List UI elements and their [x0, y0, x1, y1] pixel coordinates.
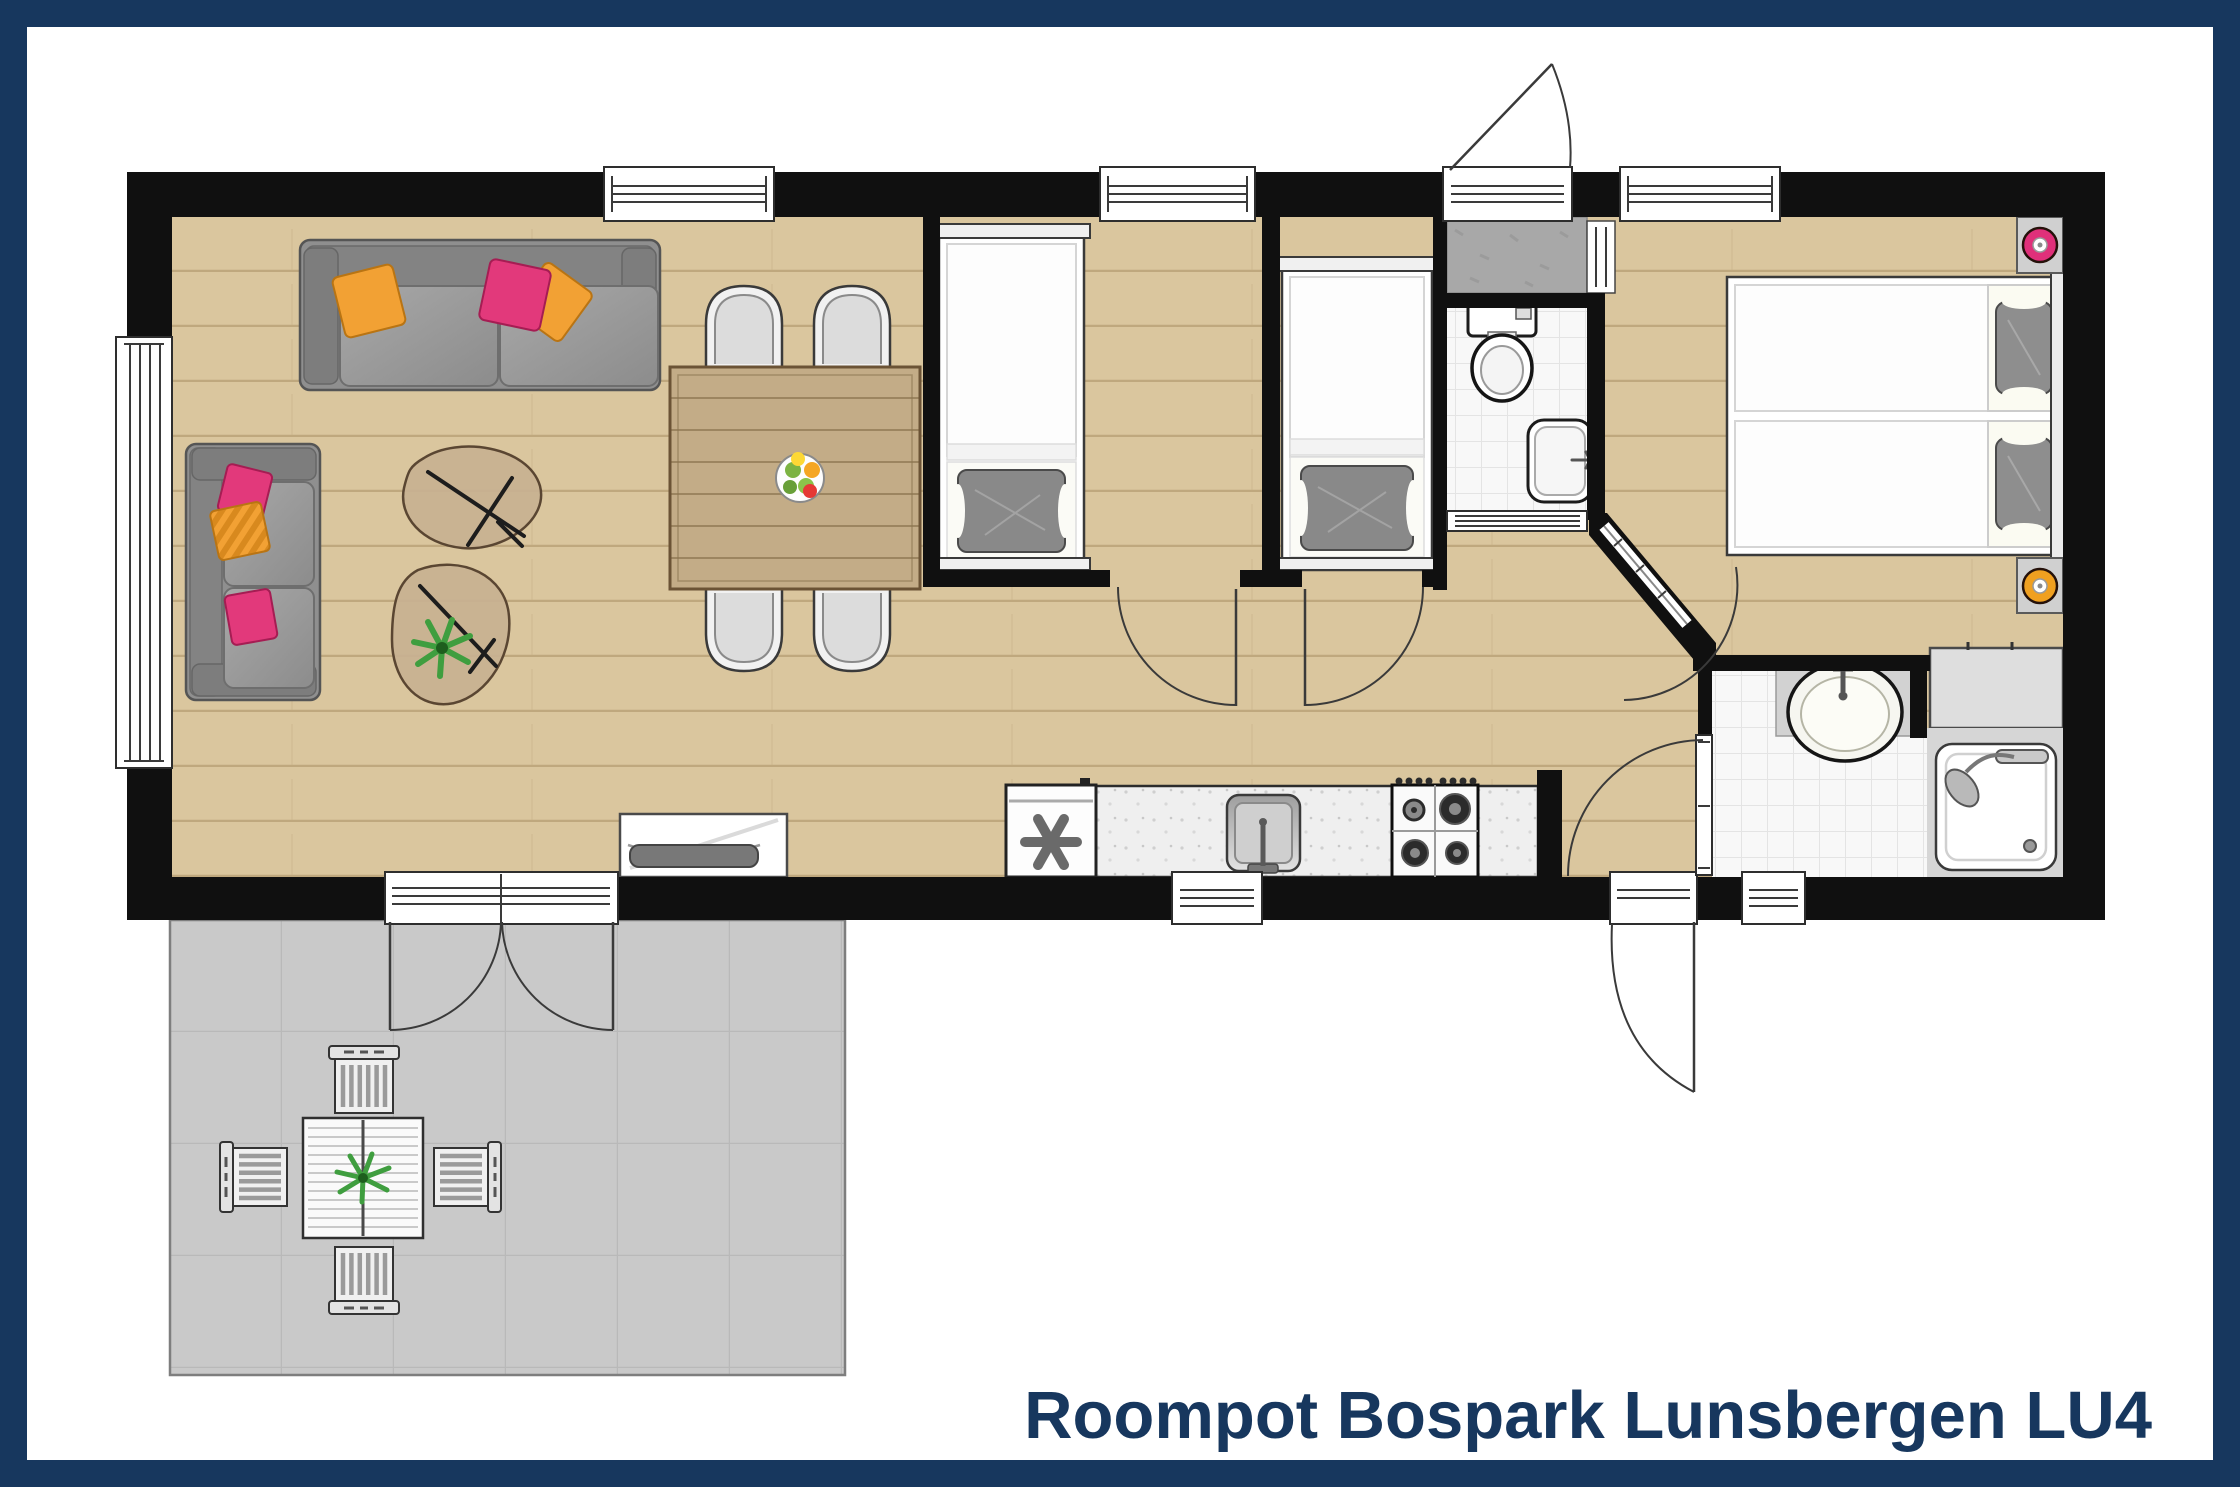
sofa-pillow-pink2	[224, 588, 278, 645]
bathroom	[1712, 642, 2063, 877]
sofa-pillow-pink	[478, 258, 552, 332]
coffee-table-1	[403, 447, 541, 549]
tv-cabinet	[620, 814, 787, 877]
toilet-sink	[1528, 420, 1594, 502]
entry-mat	[1447, 217, 1587, 293]
window-bathroom	[1742, 872, 1805, 924]
toilet	[1468, 300, 1536, 401]
kitchen-sink	[1227, 795, 1300, 873]
drain	[2024, 840, 2036, 852]
window-living	[604, 167, 774, 221]
window-left-wall	[116, 337, 172, 768]
bed-single-2	[1276, 257, 1438, 570]
shower	[1927, 728, 2063, 877]
bed-double	[1727, 271, 2065, 561]
terrace-chair	[329, 1247, 399, 1314]
terrace-table	[303, 1118, 423, 1238]
dining-chair	[814, 286, 890, 368]
dining-chair	[706, 589, 782, 671]
entry-threshold	[1587, 221, 1615, 293]
bed-single-1	[933, 224, 1090, 570]
bed-blanket	[1294, 466, 1420, 550]
bed-blanket	[951, 470, 1072, 552]
lamp-orange	[2023, 569, 2057, 603]
window-bedrooms	[1100, 167, 1255, 221]
bathroom-sink	[1788, 663, 1902, 761]
sofa-pillow-orange	[331, 263, 406, 338]
fridge	[1006, 785, 1096, 877]
floor-plan-canvas: Roompot Bospark Lunsbergen LU4	[0, 0, 2240, 1487]
dining-table	[670, 367, 920, 589]
plan-title: Roompot Bospark Lunsbergen LU4	[1024, 1378, 2152, 1453]
toilet-room	[1447, 300, 1594, 513]
bed-pillow	[1996, 295, 2052, 401]
terrace-chair	[434, 1142, 501, 1212]
fruit-bowl	[776, 452, 824, 502]
terrace-chair	[329, 1046, 399, 1113]
toilet-door-threshold	[1447, 511, 1587, 531]
dining-chair	[814, 589, 890, 671]
window-kitchen	[1172, 872, 1262, 924]
washer-counter	[1930, 642, 2063, 728]
flush-button	[1516, 308, 1531, 319]
sofa-large	[300, 240, 660, 390]
headboard	[2051, 271, 2065, 561]
floorplan-page: Roompot Bospark Lunsbergen LU4	[0, 0, 2240, 1487]
bed-pillow	[1996, 431, 2052, 537]
terrace-chair	[220, 1142, 287, 1212]
sofa-pillow-striped	[209, 501, 270, 561]
stove	[1392, 778, 1478, 878]
dining-chair	[706, 286, 782, 368]
sofa-small	[186, 444, 320, 700]
nightstand-bottom	[2017, 558, 2063, 613]
window-master	[1620, 167, 1780, 221]
nightstand-top	[2017, 217, 2063, 273]
lamp-pink	[2023, 228, 2057, 262]
tv-screen	[630, 845, 758, 867]
